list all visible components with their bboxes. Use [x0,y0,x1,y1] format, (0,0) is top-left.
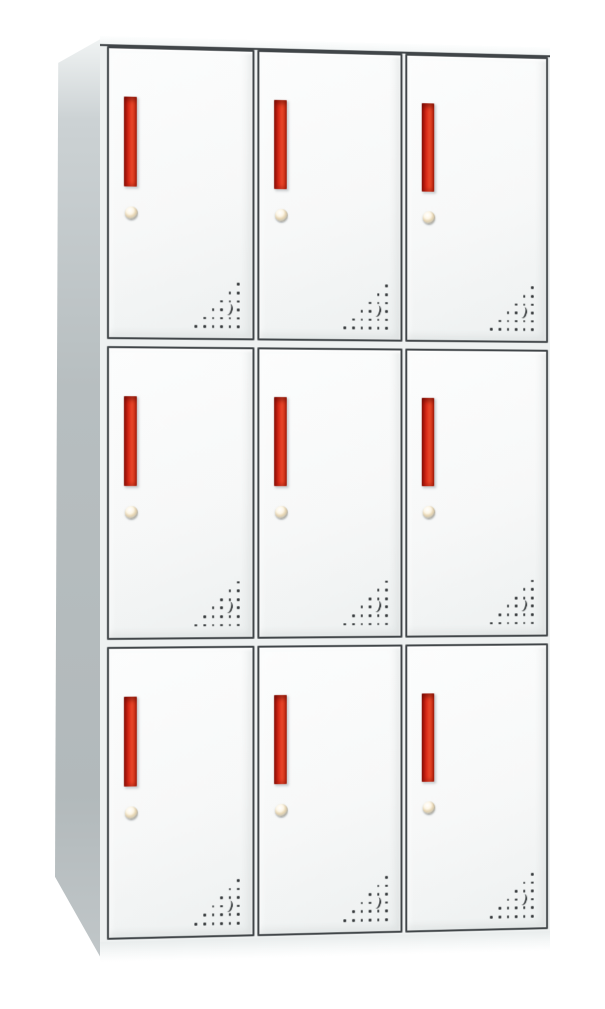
keyhole-lock [423,211,436,224]
vent-dot [369,597,372,600]
door-r2-c1 [107,346,254,639]
vent-dot [385,884,388,887]
vent-dot [515,320,518,323]
vent-dot [385,293,388,296]
vent-dot [203,325,206,328]
vent-dot [369,919,372,922]
vent-dot [515,312,518,315]
vent-dot [515,613,518,616]
vent-holes [193,879,239,927]
vent-dot [523,613,526,616]
vent-dot [237,317,240,320]
vent-crescent-hole [372,896,383,909]
vent-dot [377,293,380,296]
vent-dot [531,898,534,901]
vent-dot [220,317,223,320]
vent-dot [385,310,388,313]
vent-dot [220,325,223,328]
vent-dot [377,918,380,921]
vent-crescent-hole [372,600,383,614]
vent-dot [212,607,215,610]
door-r2-c2 [257,348,402,639]
vent-dot [490,916,493,919]
vent-dot [212,325,215,328]
vent-dot [360,310,363,313]
vent-dot [507,328,510,331]
vent-dot [377,589,380,592]
vent-dot [369,606,372,609]
locker-cabinet [0,0,605,1009]
vent-dot [229,896,232,899]
product-photo-scene [0,0,605,1009]
vent-dot [237,913,240,916]
vent-dot [523,295,526,298]
vent-dot [523,881,526,884]
vent-holes [193,581,239,628]
vent-holes [489,580,534,626]
vent-dot [212,922,215,925]
vent-dot [220,905,223,908]
vent-dot [385,876,388,879]
door-handle [124,97,137,187]
vent-dot [237,581,240,584]
keyhole-lock [125,506,138,519]
vent-crescent-hole [223,601,234,615]
vent-dot [523,303,526,306]
vent-dot [531,873,534,876]
vent-dot [498,320,501,323]
vent-dot [237,326,240,329]
vent-dot [237,905,240,908]
vent-dot [360,902,363,905]
vent-dot [220,615,223,618]
vent-dot [237,922,240,925]
vent-dot [237,598,240,601]
vent-dot [515,622,518,625]
vent-dot [360,910,363,913]
vent-dot [515,597,518,600]
vent-dot [352,911,355,914]
vent-dot [531,613,534,616]
vent-dot [212,905,215,908]
vent-dot [523,890,526,893]
vent-dot [523,915,526,918]
vent-dot [498,328,501,331]
vent-dot [229,326,232,329]
vent-crescent-hole [372,304,383,318]
vent-dot [212,914,215,917]
door-handle [274,100,287,189]
vent-dot [515,898,518,901]
door-handle [274,397,287,486]
vent-dot [490,328,493,331]
vent-dot [229,922,232,925]
vent-dot [229,913,232,916]
vent-dot [523,320,526,323]
vent-dot [385,918,388,921]
vent-dot [237,283,240,286]
vent-dot [237,888,240,891]
vent-dot [360,606,363,609]
vent-dot [369,301,372,304]
cabinet-side-panel [55,36,101,962]
vent-holes [342,284,388,331]
vent-holes [489,873,534,920]
vent-dot [220,598,223,601]
vent-dot [498,907,501,910]
vent-dot [369,902,372,905]
vent-dot [203,615,206,618]
vent-dot [212,308,215,311]
vent-crescent-hole [223,899,234,913]
door-r1-c1 [107,46,254,341]
vent-dot [377,319,380,322]
vent-dot [369,310,372,313]
vent-dot [523,907,526,910]
vent-dot [229,300,232,303]
vent-dot [360,318,363,321]
keyhole-lock [275,506,288,519]
vent-dot [385,623,388,626]
vent-dot [237,607,240,610]
vent-dot [229,624,232,627]
vent-crescent-hole [518,306,529,320]
vent-dot [531,906,534,909]
vent-dot [515,605,518,608]
vent-dot [531,303,534,306]
vent-dot [352,318,355,321]
vent-dot [507,622,510,625]
vent-dot [531,596,534,599]
vent-dot [220,607,223,610]
vent-dot [344,327,347,330]
vent-dot [531,580,534,583]
vent-dot [377,885,380,888]
vent-dot [498,622,501,625]
vent-dot [531,328,534,331]
vent-dot [385,589,388,592]
vent-dot [195,624,198,627]
vent-dot [352,614,355,617]
vent-dot [229,291,232,294]
vent-dot [377,302,380,305]
vent-dot [203,923,206,926]
vent-dot [237,590,240,593]
keyhole-lock [125,206,138,219]
vent-dot [369,327,372,330]
vent-dot [352,623,355,626]
vent-dot [220,300,223,303]
door-r1-c3 [405,54,548,344]
vent-dot [507,605,510,608]
vent-holes [342,876,388,923]
vent-dot [369,623,372,626]
vent-dot [531,890,534,893]
vent-dot [385,606,388,609]
door-r3-c2 [257,644,402,936]
vent-dot [195,325,198,328]
door-r3-c3 [405,643,548,933]
vent-dot [377,893,380,896]
keyhole-lock [423,506,436,519]
vent-dot [229,590,232,593]
vent-dot [377,623,380,626]
vent-dot [229,888,232,891]
vent-dot [360,623,363,626]
cabinet-front [100,36,550,962]
vent-dot [229,615,232,618]
vent-dot [515,890,518,893]
door-handle [422,103,435,192]
vent-dot [212,624,215,627]
vent-dot [385,580,388,583]
vent-dot [377,614,380,617]
vent-dot [385,901,388,904]
vent-dot [360,919,363,922]
vent-dot [515,907,518,910]
vent-dot [385,614,388,617]
vent-dot [203,914,206,917]
vent-dot [369,910,372,913]
door-handle [124,696,137,786]
keyhole-lock [423,801,436,814]
vent-dot [523,328,526,331]
vent-dot [220,624,223,627]
vent-dot [360,614,363,617]
vent-holes [193,282,239,329]
vent-dot [385,319,388,322]
vent-dot [498,916,501,919]
vent-crescent-hole [223,303,234,317]
vent-dot [220,308,223,311]
vent-dot [523,588,526,591]
vent-dot [377,910,380,913]
vent-dot [531,320,534,323]
vent-dot [237,300,240,303]
vent-dot [385,893,388,896]
vent-dot [531,588,534,591]
vent-dot [369,614,372,617]
vent-dot [507,311,510,314]
vent-holes [489,286,534,332]
vent-dot [352,919,355,922]
vent-dot [237,309,240,312]
vent-dot [220,922,223,925]
door-handle [274,695,287,784]
vent-dot [385,597,388,600]
vent-holes [342,580,388,627]
keyhole-lock [275,803,288,816]
vent-dot [237,624,240,627]
vent-dot [203,624,206,627]
door-handle [422,693,435,782]
vent-dot [523,622,526,625]
door-r1-c2 [257,50,402,342]
vent-dot [507,899,510,902]
vent-dot [531,915,534,918]
vent-dot [220,914,223,917]
vent-dot [220,896,223,899]
door-grid [100,46,550,942]
vent-dot [498,613,501,616]
vent-dot [515,328,518,331]
door-handle [422,398,435,486]
door-r3-c1 [107,645,254,939]
vent-crescent-hole [518,893,529,906]
vent-dot [531,605,534,608]
vent-dot [385,910,388,913]
vent-dot [531,881,534,884]
vent-dot [237,896,240,899]
vent-dot [352,327,355,330]
vent-dot [377,327,380,330]
keyhole-lock [275,209,288,222]
vent-dot [385,302,388,305]
vent-dot [531,622,534,625]
vent-dot [229,317,232,320]
vent-dot [237,879,240,882]
vent-dot [344,623,347,626]
vent-dot [369,318,372,321]
vent-dot [531,295,534,298]
vent-dot [203,317,206,320]
door-handle [124,396,137,486]
vent-dot [531,312,534,315]
vent-dot [507,320,510,323]
vent-dot [515,303,518,306]
keyhole-lock [125,806,138,819]
vent-dot [360,327,363,330]
vent-dot [237,292,240,295]
vent-dot [385,327,388,330]
vent-dot [531,287,534,290]
vent-dot [212,615,215,618]
vent-dot [195,923,198,926]
vent-dot [369,893,372,896]
vent-crescent-hole [518,599,529,612]
vent-dot [237,615,240,618]
vent-dot [212,317,215,320]
vent-dot [507,907,510,910]
vent-dot [490,622,493,625]
door-r2-c3 [405,349,548,637]
vent-dot [507,613,510,616]
vent-dot [515,915,518,918]
vent-dot [344,919,347,922]
vent-dot [385,285,388,288]
vent-dot [507,915,510,918]
